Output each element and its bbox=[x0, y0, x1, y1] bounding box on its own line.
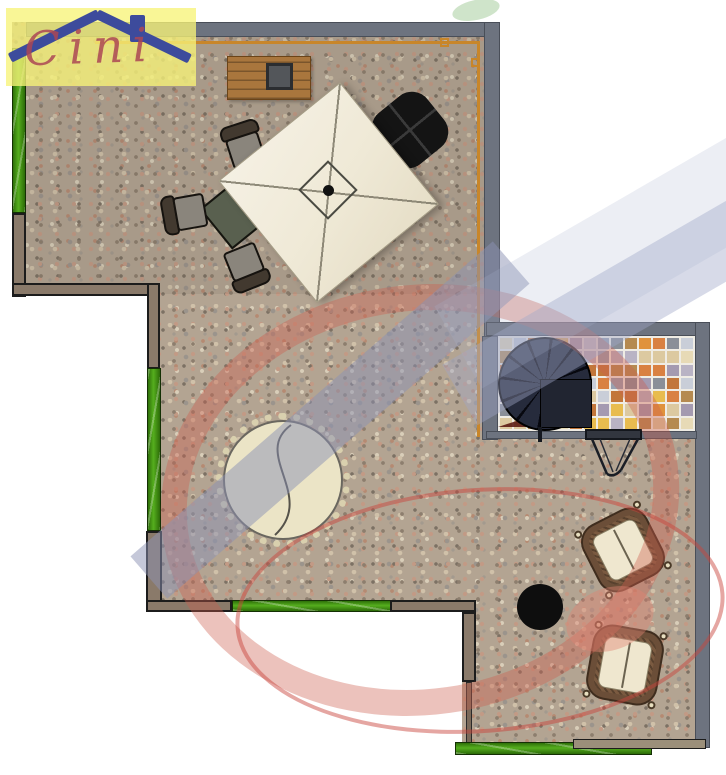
mosaic-tile bbox=[611, 351, 623, 362]
mosaic-tile bbox=[625, 338, 637, 349]
parasol-center-dot bbox=[323, 185, 334, 196]
mosaic-tile bbox=[653, 391, 665, 402]
mosaic-tile bbox=[611, 378, 623, 389]
wall-right-lower bbox=[695, 322, 710, 748]
stair-room-wall-left bbox=[482, 336, 498, 440]
round-daybed bbox=[223, 420, 343, 540]
mosaic-tile bbox=[667, 418, 679, 429]
terrace-floor-plan: Cini bbox=[0, 0, 726, 775]
railing-hook-right bbox=[471, 58, 480, 67]
mosaic-tile bbox=[625, 378, 637, 389]
mosaic-tile bbox=[667, 404, 679, 415]
mosaic-tile bbox=[667, 391, 679, 402]
dining-chair-west bbox=[159, 187, 212, 238]
wicker-armchair-lower bbox=[585, 624, 664, 707]
mosaic-tile bbox=[681, 418, 693, 429]
mosaic-tile bbox=[681, 404, 693, 415]
mosaic-tile bbox=[653, 351, 665, 362]
mosaic-tile bbox=[667, 351, 679, 362]
mosaic-tile bbox=[639, 338, 651, 349]
mosaic-tile bbox=[598, 378, 610, 389]
mosaic-tile bbox=[611, 338, 623, 349]
railing-line-right bbox=[477, 41, 480, 437]
parapet-brown-right-horizontal bbox=[390, 600, 476, 612]
mosaic-tile bbox=[625, 404, 637, 415]
mosaic-tile bbox=[667, 338, 679, 349]
parapet-tan-bottom bbox=[573, 739, 706, 749]
railing-hook-top bbox=[440, 38, 449, 47]
mosaic-tile bbox=[639, 351, 651, 362]
mosaic-tile bbox=[625, 391, 637, 402]
mosaic-tile bbox=[611, 365, 623, 376]
round-side-table bbox=[517, 584, 563, 630]
mosaic-tile bbox=[681, 391, 693, 402]
parapet-green-left-mid bbox=[147, 368, 161, 531]
mosaic-tile bbox=[639, 378, 651, 389]
mosaic-tile bbox=[639, 365, 651, 376]
mosaic-tile bbox=[653, 365, 665, 376]
wall-right-upper bbox=[484, 22, 500, 340]
stair-landing bbox=[540, 379, 592, 428]
mosaic-tile bbox=[598, 338, 610, 349]
folding-chair bbox=[583, 428, 647, 482]
mosaic-tile bbox=[653, 418, 665, 429]
parapet-brown-corner-horizontal bbox=[146, 600, 232, 612]
mosaic-tile bbox=[681, 378, 693, 389]
mosaic-tile bbox=[681, 365, 693, 376]
mosaic-tile bbox=[639, 391, 651, 402]
mosaic-tile bbox=[667, 378, 679, 389]
daybed-divider-curve bbox=[225, 422, 341, 538]
stair-room-wall-top bbox=[486, 322, 710, 336]
mosaic-tile bbox=[598, 391, 610, 402]
chair-seat bbox=[172, 193, 208, 232]
mosaic-tile bbox=[500, 338, 512, 349]
mosaic-tile bbox=[584, 338, 596, 349]
mosaic-tile bbox=[639, 404, 651, 415]
parapet-brown-step-horizontal bbox=[12, 283, 160, 296]
mosaic-tile bbox=[598, 365, 610, 376]
mosaic-tile bbox=[667, 365, 679, 376]
parapet-brown-right-vertical bbox=[462, 612, 476, 682]
mosaic-tile bbox=[625, 351, 637, 362]
mosaic-tile bbox=[611, 404, 623, 415]
mosaic-tile bbox=[598, 404, 610, 415]
parapet-thin-post bbox=[466, 682, 472, 748]
serving-tray bbox=[266, 63, 293, 90]
mosaic-tile bbox=[611, 391, 623, 402]
mosaic-tile bbox=[625, 365, 637, 376]
mosaic-tile bbox=[598, 351, 610, 362]
mosaic-tile bbox=[653, 338, 665, 349]
logo-text: Cini bbox=[23, 18, 157, 78]
mosaic-tile bbox=[681, 351, 693, 362]
mosaic-tile bbox=[681, 338, 693, 349]
parapet-brown-step-vertical bbox=[147, 283, 160, 369]
mosaic-tile bbox=[653, 404, 665, 415]
wicker-cushion bbox=[597, 635, 653, 695]
parapet-green-bottom-mid bbox=[232, 600, 392, 612]
wicker-cushion bbox=[590, 517, 655, 583]
mosaic-tile bbox=[653, 378, 665, 389]
stair-pole bbox=[538, 427, 542, 442]
